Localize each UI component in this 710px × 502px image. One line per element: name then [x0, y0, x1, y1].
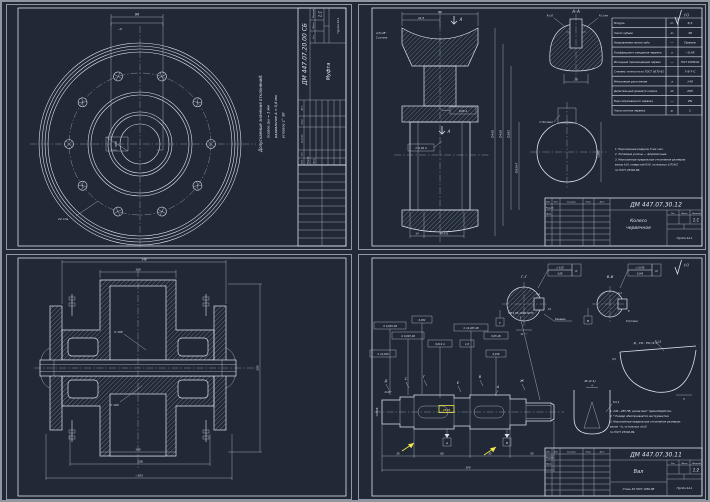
- note-line: по ГОСТ 25346-89.: [610, 430, 635, 434]
- date-label: Дата: [599, 452, 605, 454]
- dim-t1: 148: [141, 258, 147, 262]
- note-line: 2. Литейные уклоны — формовочные.: [615, 152, 667, 156]
- chamfer-note: 4,5×45°: [376, 31, 387, 35]
- cut-label: А: [496, 385, 500, 389]
- dim: R 0,4 макс: [626, 320, 639, 323]
- list-label: Лист: [553, 452, 560, 454]
- selected-dim-text[interactable]: 45к6: [443, 408, 451, 412]
- prov-label: Пров.: [314, 158, 316, 164]
- date-label: Дата: [302, 106, 304, 112]
- dim-sec-w: 28: [574, 78, 578, 82]
- dim-bore2: ∅ 100: [110, 403, 119, 407]
- note-radial: радиальное Δ ≈ 0,6 мм: [274, 95, 278, 139]
- sheet-coupling-section[interactable]: 148 100 ∅ 100 ∅ 100 145 158 ~203 205: [6, 254, 352, 500]
- param-val: ZN: [687, 99, 693, 103]
- param-val: 6,3: [688, 21, 693, 25]
- org-label: Группа 4А-1: [677, 486, 693, 490]
- doc-label: № докум.: [301, 134, 304, 144]
- section-arrow-a-top: А: [459, 17, 463, 22]
- bolt-hole[interactable]: [112, 206, 123, 217]
- cut-label: В: [479, 375, 482, 379]
- groove-note: Канавка: [555, 318, 566, 321]
- cut-label: Е: [457, 381, 460, 385]
- param-sym: —: [671, 99, 674, 103]
- dim-b1: 14: [415, 232, 419, 236]
- param-sym: —: [671, 41, 674, 45]
- note-angular: угловое 1° 30′: [282, 112, 286, 139]
- note-line: 3. Неуказанные предельные отклонения раз…: [615, 157, 686, 161]
- bolt[interactable]: [69, 294, 75, 316]
- razrab-label: Разраб.: [307, 156, 310, 164]
- param-val: 7-8-7-С: [684, 70, 696, 74]
- material: Сталь 45 ГОСТ 1050-88: [623, 487, 655, 491]
- coupling-front-view[interactable]: 50H7 90 ~6 12 отв.: [30, 13, 256, 249]
- tolerance-text: 0,08: [558, 273, 563, 276]
- tolerance-text: ∅ 14,025 АБ: [463, 327, 479, 330]
- tolerance-text: ∅ 0,025 АБ: [401, 335, 415, 338]
- note-line: 1. Неуказанные радиусы 5 мм max.: [615, 147, 664, 151]
- note-line: валов h14, отверстий H14, остальных ±IT1…: [615, 163, 678, 167]
- dim-total: 300: [466, 466, 471, 470]
- bolt[interactable]: [203, 420, 209, 442]
- param-sym: m: [671, 21, 674, 25]
- tolerance-text: ∅ 0,025 АБ: [383, 325, 397, 328]
- bolt-hole[interactable]: [76, 96, 89, 109]
- bolt-hole[interactable]: [156, 71, 167, 82]
- part-name: Вал: [634, 469, 644, 475]
- prov-label: Пров.: [546, 214, 552, 216]
- cut-label: Д: [384, 379, 388, 383]
- section-arrow-a-mid: А: [447, 129, 451, 134]
- doc-number: ДМ 447.07.20.00 СБ: [302, 23, 309, 86]
- izm-label: Изм.: [546, 202, 551, 204]
- dim: 4: [591, 385, 593, 388]
- doc-label: № докум.: [566, 201, 576, 204]
- dim-s2: 80: [440, 452, 444, 456]
- tolerance-text: 0,05 АБ: [491, 335, 501, 338]
- izm-label: Изм.: [302, 159, 304, 164]
- datum-letter: В: [587, 319, 589, 323]
- revision-strip: [298, 165, 346, 246]
- cut-label: Ж: [519, 379, 524, 383]
- mass-label: Масса: [682, 463, 688, 465]
- note-axial: осевое Δω = 1 мм: [267, 105, 271, 138]
- dim-d2: ∅420: [499, 130, 503, 138]
- tolerance-text: ∅ 0,02: [556, 267, 564, 270]
- dim-b3: ~203: [135, 474, 143, 478]
- dim-t2: 100: [135, 268, 141, 272]
- datum-flag: И: [655, 269, 658, 273]
- list-label: Лист: [302, 151, 304, 158]
- dim-key: ~6: [118, 27, 122, 31]
- section-bb[interactable]: В–В ∅ 0,018 0,045 И В 8 5,4 R 0,4 макс: [584, 264, 661, 324]
- tolerance-text: ∅ 0,018: [636, 267, 645, 270]
- param-sym: z₂: [670, 31, 675, 35]
- dim-r1: 205: [256, 365, 260, 371]
- technical-notes: 1. Неуказанные радиусы 5 мм max. 2. Лите…: [615, 147, 686, 172]
- selected-leader-1[interactable]: [402, 443, 414, 451]
- param-sym: —: [671, 60, 674, 64]
- param-val: −0,45: [685, 50, 694, 54]
- param-name: Межосевое расстояние: [614, 79, 648, 83]
- doc-number: ДМ 447.07.30.12: [629, 202, 682, 209]
- roughness-alt: (√): [684, 263, 690, 267]
- param-val: ГОСТ 19036-94: [681, 61, 700, 64]
- title-block[interactable]: ДМ 447.07.30.12 Колесо червячное 1:1 Лит…: [545, 198, 702, 246]
- sheet-worm-wheel[interactable]: (√) 90 42,5 4,5×45° 2 уступа ∅450 ∅420 ∅…: [358, 4, 706, 250]
- param-val: 1: [689, 109, 691, 113]
- bolt-hole[interactable]: [191, 179, 204, 192]
- gear-parameter-table[interactable]: Модуль m 6,3 Число зубьев z₂ 48 Направле…: [612, 18, 702, 115]
- roughness-mark: (√): [675, 260, 690, 274]
- datum-flag: К: [575, 269, 578, 273]
- datum-letter: Г: [499, 321, 501, 325]
- hub-end-view[interactable]: ∅ 64 макс ∅265: [530, 102, 606, 188]
- note-line: 1. 240…285 HB, кроме мест термообработки…: [610, 409, 672, 413]
- razrab-label: Разраб.: [546, 457, 554, 460]
- detail-d[interactable]: Д , СО : ЕО (4:1) R 1,6 0,5 5: [612, 341, 696, 402]
- tolerance-text: 0,012 А: [435, 343, 445, 346]
- part-name2: червячное: [626, 226, 651, 231]
- center-lines: [30, 26, 256, 248]
- dim-s3: 35: [488, 452, 492, 456]
- dim-b2: 40 h11: [439, 232, 448, 236]
- cad-canvas[interactable]: 50H7 90 ~6 12 отв. Допускаемые значения …: [0, 0, 710, 502]
- dim-left-diameter: ∅35k6: [375, 407, 379, 416]
- section-aa-label: А–А: [571, 9, 580, 14]
- tolerance-text: 0,032: [419, 319, 426, 322]
- tolerance-frames[interactable]: ∅ 0,025 АБ 0,032 ∅ 0,025 АБ 0,012 А ∅ 14…: [370, 316, 508, 398]
- dim: 0,5: [612, 358, 616, 361]
- razrab-label: Разраб.: [546, 207, 554, 210]
- datum-flag-a[interactable]: А: [443, 430, 451, 447]
- lit-label: Лит.: [670, 213, 676, 215]
- tolerance-text: 0,016: [493, 353, 500, 356]
- prov-label: Пров.: [546, 464, 552, 466]
- dim: R 1,6: [655, 341, 662, 344]
- cut-label: Г: [423, 375, 426, 379]
- param-val: Правое: [684, 41, 696, 45]
- param-val: 48: [688, 31, 692, 35]
- scale-label: Масштаб: [692, 462, 701, 465]
- dim-b2: 158: [137, 460, 143, 464]
- title-block[interactable]: ДМ 447.07.20.00 СБ Муфта 1:1 Лит. Масса …: [298, 8, 346, 165]
- dim-s4: 50: [530, 452, 534, 456]
- sheet-coupling-assembly[interactable]: 50H7 90 ~6 12 отв. Допускаемые значения …: [6, 4, 352, 250]
- section-bb-label: В–В: [607, 275, 614, 279]
- lit-label: Лит.: [670, 463, 676, 465]
- datum-letter: Б: [506, 441, 508, 445]
- param-name: Направление линии зуба: [614, 41, 650, 45]
- section-gg-label: Г–Г: [521, 275, 528, 279]
- dim: 5: [683, 398, 685, 401]
- lit-label: Лит.: [313, 35, 315, 41]
- detail-zh-label: Ж (4:1): [583, 379, 595, 383]
- date-label: Дата: [599, 202, 605, 204]
- dim: 5,4: [618, 292, 622, 295]
- dim-d1: ∅450: [491, 130, 495, 138]
- title-block[interactable]: ДМ 447.07.30.11 Вал Сталь 45 ГОСТ 1050-8…: [545, 448, 702, 496]
- holes-leader: [76, 201, 98, 216]
- param-name: Вид сопряжённого червяка: [614, 99, 653, 103]
- dim-top: 90: [438, 10, 442, 14]
- chamfer-note2: 2 уступа: [376, 36, 388, 40]
- dim: 5,4: [536, 293, 540, 296]
- roughness-alt: (√): [684, 13, 690, 17]
- dim-b1: 145: [135, 448, 141, 452]
- bolt[interactable]: [203, 294, 209, 316]
- dim-s1: 35: [396, 452, 400, 456]
- datum-letter: А: [445, 441, 448, 445]
- dim: R 0,4: [613, 401, 620, 404]
- param-val: 265: [687, 89, 693, 93]
- note-line: по ГОСТ 25346-89.: [615, 168, 640, 172]
- radius-note1: R≈10: [547, 15, 554, 18]
- bore-dim: 50H7: [115, 140, 118, 146]
- param-sym: z₁: [670, 109, 675, 113]
- section-gg[interactable]: Г–Г ∅ 0,02 0,08 К Г 12 5,4 11⁺⁰·² Канавк…: [496, 264, 581, 336]
- circle-dim: ∅265: [597, 150, 601, 158]
- bolt-hole[interactable]: [76, 179, 89, 192]
- sign-label: Подп.: [586, 452, 592, 454]
- dim-left: 42,5: [418, 16, 424, 20]
- dim: 8: [628, 310, 630, 313]
- section-aa[interactable]: А–А R≈10 R≈1 мм 28: [547, 9, 608, 84]
- param-name: Число витков червяка: [614, 109, 646, 113]
- dim-d4: ∅85H7: [515, 163, 519, 174]
- dim-bore1: ∅ 100: [114, 330, 123, 334]
- note-line: валов −t₂, остальных ±t₂/2: [610, 425, 647, 429]
- part-name: Колесо: [630, 218, 647, 224]
- sheet-shaft[interactable]: (√) Г–Г ∅ 0,02 0,08 К Г 12 5,4 11⁺⁰·² Ка…: [358, 254, 706, 500]
- tolerance-text: 0,045: [637, 273, 644, 276]
- keyway-dim: ∅ 64 макс: [539, 120, 553, 124]
- shaft-main-view[interactable]: 45к6 Д С Г В А Ж Е А Б 35 80 35: [374, 375, 564, 472]
- thread-note-text: ТМ 4 05-19Х0-50ТС: [508, 311, 534, 315]
- org-label: Группа 4А-1: [336, 17, 340, 33]
- dim: 12: [548, 308, 552, 311]
- note-line: 3. Неуказанные предельные отклонения раз…: [610, 419, 681, 423]
- scale-value: 1:1: [318, 11, 323, 17]
- param-name: Модуль: [614, 21, 625, 25]
- bolt-hole[interactable]: [112, 71, 123, 82]
- scale-value: 1:1: [693, 218, 699, 223]
- param-sym: a: [671, 79, 673, 83]
- coupling-section-view[interactable]: [34, 270, 256, 468]
- cut-label: С: [405, 377, 408, 381]
- tolerance-text: ∅ 0,02 А: [415, 146, 427, 150]
- scale-label: Масштаб: [692, 212, 701, 215]
- deviation-note: Допускаемые значения отклонений: осевое …: [258, 74, 286, 153]
- tolerance-text: ∅ 14,045: [377, 353, 389, 356]
- worm-wheel-section-view[interactable]: 90 42,5 4,5×45° 2 уступа ∅450 ∅420 ∅265 …: [376, 10, 519, 242]
- part-name: Муфта: [326, 63, 332, 81]
- note-title: Допускаемые значения отклонений:: [258, 74, 263, 153]
- sign-label: Подп.: [586, 202, 592, 204]
- dim-holes: 12 отв.: [58, 217, 69, 221]
- doc-label: № докум.: [566, 451, 576, 454]
- bolt-hole[interactable]: [156, 206, 167, 217]
- tolerance-frame[interactable]: ∅ 0,02 А: [408, 141, 442, 151]
- param-sym: x: [670, 50, 673, 54]
- bolt-hole[interactable]: [191, 96, 204, 109]
- param-val: 140: [687, 79, 693, 83]
- param-name: Степень точности по ГОСТ 3675-81: [614, 70, 664, 74]
- doc-number: ДМ 447.07.30.11: [629, 452, 682, 459]
- note-line: 2. * Размер обеспечивается инструментом.: [610, 414, 670, 418]
- dim-d3: ∅265: [507, 130, 511, 138]
- param-name: Делительный диаметр колеса: [613, 89, 657, 93]
- sheet-frame: [18, 8, 346, 246]
- param-name: Коэффициент смещения червяка: [614, 50, 662, 54]
- param-sym: d₂: [670, 89, 674, 93]
- param-name: Исходный производящий червяк: [614, 60, 661, 64]
- tolerance-text: 0,05 А: [459, 109, 468, 113]
- scale-label: Масштаб: [312, 8, 315, 17]
- izm-label: Изм.: [546, 452, 551, 454]
- mass-label: Масса: [682, 213, 688, 215]
- tolerance-text: 1,6: [465, 343, 469, 346]
- radius-note2: R≈1 мм: [599, 15, 608, 18]
- dim-chamfer: 2×45°: [384, 391, 391, 394]
- org-label: Группа 4А-1: [677, 236, 693, 240]
- technical-notes: 1. 240…285 HB, кроме мест термообработки…: [610, 409, 681, 434]
- list-label: Лист: [553, 202, 560, 204]
- mass-label: Масса: [313, 23, 315, 29]
- param-name: Число зубьев: [614, 31, 633, 35]
- scale-value: 1:2: [693, 468, 700, 473]
- dim-width: 90: [135, 13, 140, 17]
- selected-dimension[interactable]: 45к6: [439, 406, 454, 413]
- sign-label: Подп.: [302, 118, 304, 124]
